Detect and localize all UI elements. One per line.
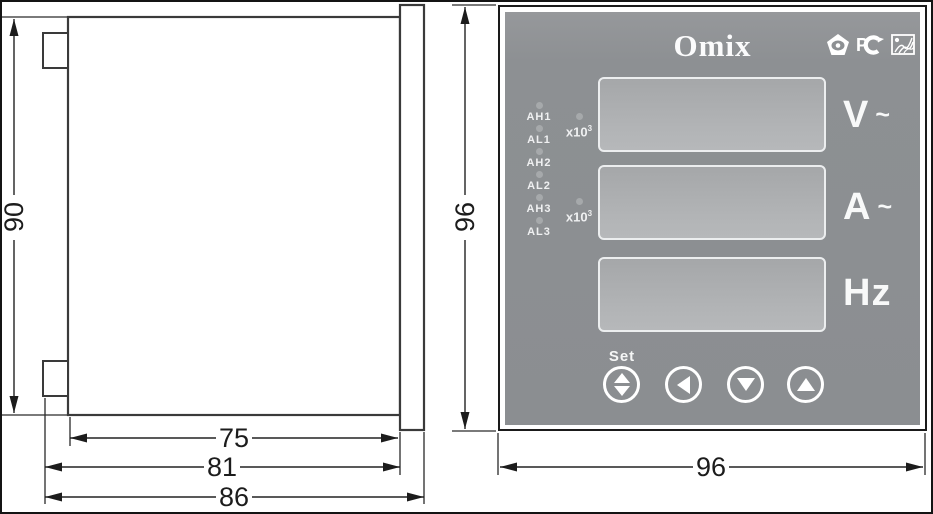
multiplier-indicator-voltage: x103 <box>557 113 601 138</box>
multiplier-label: x103 <box>566 122 592 138</box>
multiplier-base: x10 <box>566 209 588 224</box>
led-dot <box>536 148 543 155</box>
led-indicator-ah2: AH2 <box>517 148 561 169</box>
led-dot <box>536 171 543 178</box>
unit-text: Hz <box>843 272 891 315</box>
approval-pentagon-icon <box>826 33 850 56</box>
dim-label-front-height-96: 96 <box>450 202 480 232</box>
multiplier-exponent: 3 <box>588 124 592 133</box>
display-window-voltage <box>598 77 826 152</box>
panel-meter-dimension-drawing: 90 75 81 86 96 96 Omix P <box>0 0 933 514</box>
side-view-front-bezel <box>400 5 424 430</box>
metrology-icon <box>891 34 915 55</box>
dim-label-depth-75: 75 <box>219 423 249 453</box>
multiplier-indicator-current: x103 <box>557 198 601 223</box>
left-button <box>665 366 702 403</box>
display-window-current <box>598 165 826 240</box>
led-indicator-al3: AL3 <box>517 217 561 238</box>
side-view-outline <box>43 5 424 430</box>
down-triangle <box>614 386 630 396</box>
dim-label-depth-81: 81 <box>207 452 237 482</box>
led-label: AH2 <box>526 157 551 169</box>
led-label: AH1 <box>526 111 551 123</box>
down-button <box>727 366 764 403</box>
left-triangle-icon <box>677 376 690 394</box>
led-indicator-ah1: AH1 <box>517 102 561 123</box>
display-window-frequency <box>598 257 826 332</box>
side-view-bottom-mounting-clip <box>43 361 68 396</box>
led-label: AH3 <box>526 203 551 215</box>
side-view-top-mounting-clip <box>43 33 68 68</box>
dim-label-height-90: 90 <box>0 202 29 232</box>
led-dot <box>576 113 583 120</box>
dim-label-front-width-96: 96 <box>696 452 726 482</box>
led-indicator-al1: AL1 <box>517 125 561 146</box>
up-button <box>787 366 824 403</box>
multiplier-exponent: 3 <box>588 209 592 218</box>
up-down-arrows-icon <box>614 373 630 396</box>
gost-r-icon: P <box>857 34 884 56</box>
down-triangle-icon <box>737 378 755 391</box>
led-indicator-ah3: AH3 <box>517 194 561 215</box>
unit-label-current: A ~ <box>843 187 893 227</box>
front-panel-face: Omix P AH1 <box>505 12 920 425</box>
certification-marks: P <box>826 33 915 56</box>
led-indicator-al2: AL2 <box>517 171 561 192</box>
unit-label-frequency: Hz <box>843 273 897 313</box>
multiplier-label: x103 <box>566 207 592 223</box>
up-triangle-icon <box>797 378 815 391</box>
led-dot <box>536 102 543 109</box>
unit-label-voltage: V ~ <box>843 95 891 135</box>
side-view-body <box>68 17 400 415</box>
led-dot <box>536 125 543 132</box>
ac-wave-symbol: ~ <box>875 101 891 130</box>
dim-label-depth-86: 86 <box>219 482 249 512</box>
led-label: AL3 <box>527 226 551 238</box>
unit-text: V <box>843 94 869 137</box>
led-label: AL1 <box>527 134 551 146</box>
led-label: AL2 <box>527 180 551 192</box>
multiplier-base: x10 <box>566 124 588 139</box>
unit-text: A <box>843 186 871 229</box>
led-dot <box>536 217 543 224</box>
set-button-label: Set <box>600 348 644 365</box>
led-dot <box>576 198 583 205</box>
led-dot <box>536 194 543 201</box>
ac-wave-symbol: ~ <box>877 193 893 222</box>
up-triangle <box>614 373 630 383</box>
set-button <box>603 366 640 403</box>
